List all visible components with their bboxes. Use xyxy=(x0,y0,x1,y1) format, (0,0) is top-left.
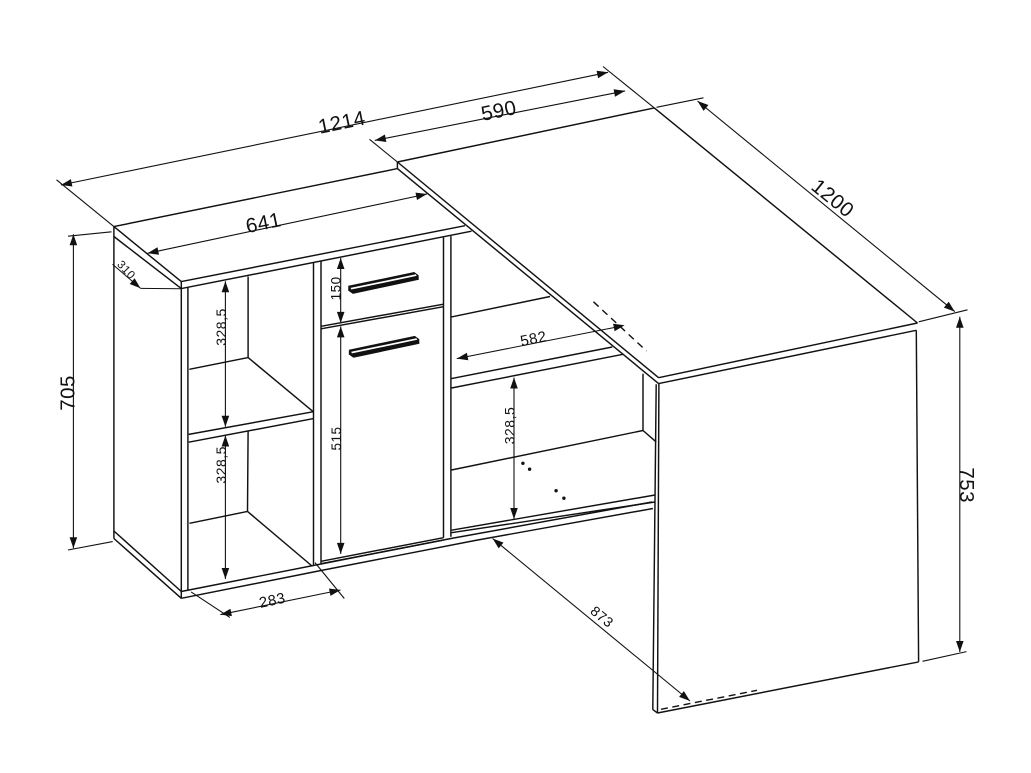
svg-text:753: 753 xyxy=(955,467,978,503)
svg-text:515: 515 xyxy=(329,426,344,450)
svg-text:150: 150 xyxy=(328,276,343,300)
svg-text:705: 705 xyxy=(56,375,79,411)
svg-text:328,5: 328,5 xyxy=(213,446,229,484)
svg-text:328,5: 328,5 xyxy=(213,308,229,346)
svg-text:328,5: 328,5 xyxy=(502,407,518,445)
